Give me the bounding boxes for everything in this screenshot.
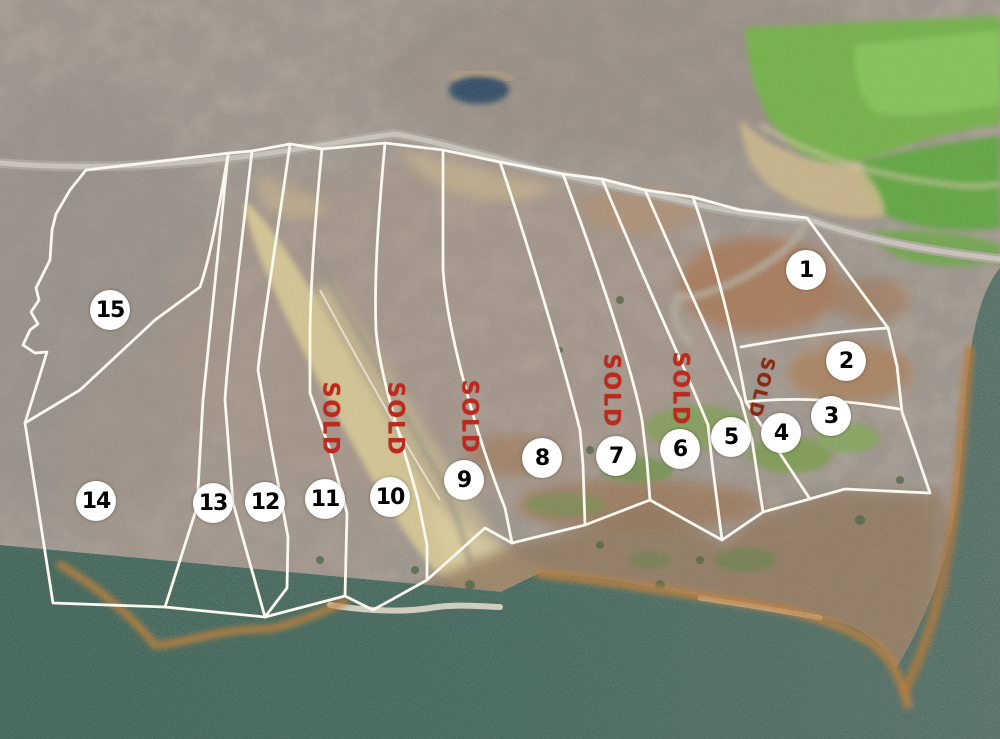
lot-marker-12[interactable]: 12 [245, 482, 285, 522]
lot-marker-10[interactable]: 10 [370, 477, 410, 517]
sold-label-lot-11: SOLD [318, 382, 343, 457]
lot-marker-9[interactable]: 9 [444, 460, 484, 500]
lot-marker-15[interactable]: 15 [90, 290, 130, 330]
lot-marker-4[interactable]: 4 [761, 413, 801, 453]
lot-marker-3[interactable]: 3 [811, 396, 851, 436]
lot-marker-11[interactable]: 11 [305, 479, 345, 519]
lot-marker-8[interactable]: 8 [522, 438, 562, 478]
sold-label-lot-10: SOLD [383, 382, 408, 457]
lot-map-stage: SOLD SOLD SOLD SOLD SOLD SOLD 1 2 3 4 5 … [0, 0, 1000, 739]
lot-marker-7[interactable]: 7 [596, 436, 636, 476]
lot-marker-2[interactable]: 2 [826, 341, 866, 381]
sold-label-lot-6: SOLD [668, 352, 693, 427]
lot-marker-14[interactable]: 14 [76, 481, 116, 521]
lot-marker-13[interactable]: 13 [193, 483, 233, 523]
lot-marker-1[interactable]: 1 [786, 250, 826, 290]
sold-label-lot-9: SOLD [457, 380, 482, 455]
lot-marker-6[interactable]: 6 [660, 429, 700, 469]
sold-label-lot-7: SOLD [599, 354, 624, 429]
lot-marker-5[interactable]: 5 [711, 417, 751, 457]
